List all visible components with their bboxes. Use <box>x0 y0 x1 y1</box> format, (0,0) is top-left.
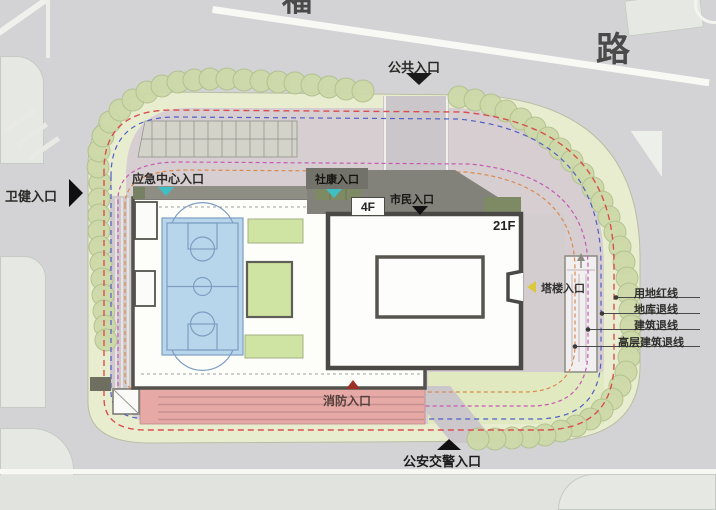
label-community-clinic-entrance: 社康入口 <box>306 168 368 189</box>
legend-item-building-setback: 建筑退线 <box>634 317 678 333</box>
legend-item-land-red-line: 用地红线 <box>634 285 678 301</box>
site-plan-canvas <box>0 0 716 510</box>
east-plaza <box>521 214 565 392</box>
tower-floor-tag: 21F <box>493 218 515 233</box>
tower-entrance-notch <box>508 271 523 303</box>
label-police-traffic-entrance: 公安交警入口 <box>403 451 481 470</box>
fire-entrance-arrow-icon <box>346 380 360 389</box>
tower-building <box>328 214 523 368</box>
tower-roof-core <box>377 257 483 317</box>
podium-floors-text: 4F <box>361 200 375 214</box>
podium-floor-tag: 4F <box>351 197 385 216</box>
public-entrance-arrow-icon <box>406 73 432 85</box>
label-tower-entrance: 塔楼入口 <box>541 280 585 296</box>
citizen-entrance-arrow-icon <box>412 206 428 215</box>
lawn-patch <box>247 262 292 317</box>
label-health-entrance: 卫健入口 <box>5 186 57 205</box>
tower-entrance-arrow-icon <box>527 281 536 293</box>
legend-item-highrise-setback: 高层建筑退线 <box>618 334 684 350</box>
road-name: 路 <box>596 22 630 71</box>
label-emergency-center-entrance: 应急中心入口 <box>132 170 204 187</box>
road-name-partial: 福 <box>282 0 312 20</box>
police-entrance-arrow-icon <box>437 439 461 450</box>
label-citizen-entrance: 市民入口 <box>390 191 434 207</box>
community-clinic-marker-icon <box>326 189 342 198</box>
community-clinic-text: 社康入口 <box>315 171 359 187</box>
basketball-court <box>162 203 243 371</box>
site-plan: 福 路 公共入口 卫健入口 应急中心入口 社康入口 4F 市民入口 21F 塔楼… <box>0 0 716 510</box>
parking-hatch <box>138 121 297 157</box>
basement-ramp <box>565 253 597 372</box>
emergency-entrance-marker-icon <box>158 187 174 196</box>
label-fire-entrance: 消防入口 <box>323 392 371 409</box>
lawn-patch <box>248 219 303 243</box>
lawn-patch <box>245 335 303 358</box>
legend-item-basement-setback: 地库退线 <box>634 301 678 317</box>
health-entrance-arrow-icon <box>69 179 83 207</box>
